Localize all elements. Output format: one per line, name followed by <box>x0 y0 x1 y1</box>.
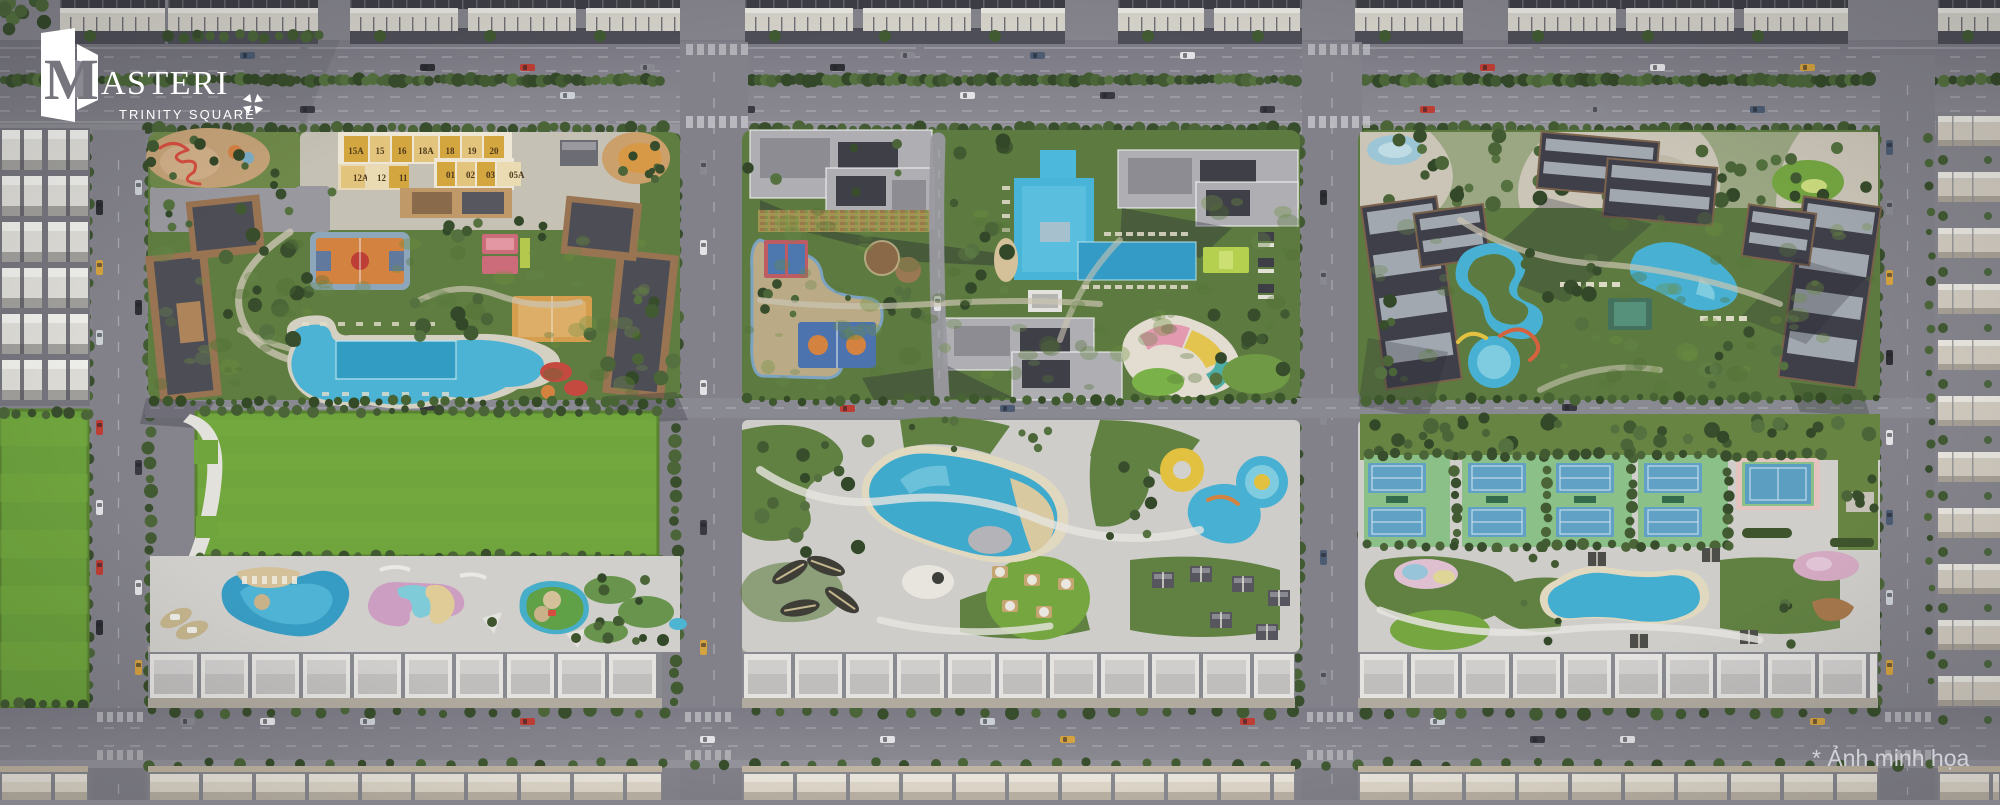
svg-text:ASTERI: ASTERI <box>101 65 229 102</box>
svg-text:M: M <box>44 47 99 112</box>
svg-text:TRINITY SQUARE: TRINITY SQUARE <box>119 107 256 122</box>
svg-text:* Ảnh minh họa: * Ảnh minh họa <box>1812 743 1969 771</box>
